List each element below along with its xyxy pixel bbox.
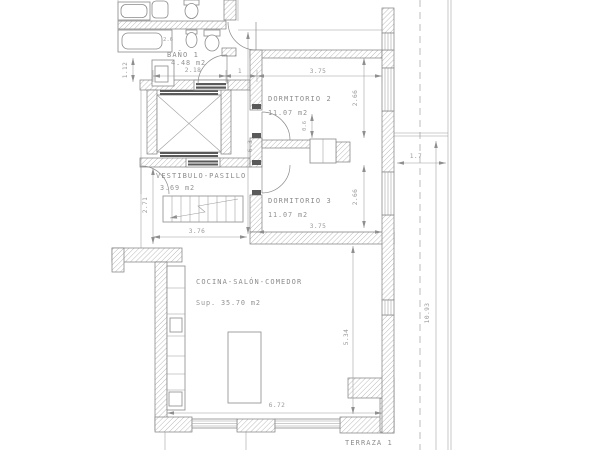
- room-label-bano1: BAÑO 1: [167, 50, 199, 59]
- room-area-dormitorio3: 11.07 m2: [268, 211, 308, 219]
- window-bottom-1: [192, 419, 237, 428]
- room-label-dormitorio3: DORMITORIO 3: [268, 197, 332, 205]
- dim-stair-width: 3.76: [189, 228, 206, 235]
- closet: [310, 139, 336, 163]
- room-label-terraza: TERRAZA 1: [345, 439, 393, 447]
- kitchen-appliance: [169, 392, 182, 406]
- dim-closet-depth: 0.6: [302, 121, 308, 131]
- dim-terraza-length: 10.93: [424, 303, 431, 324]
- floor-plan: BAÑO 1 4.48 m2 2.18 1.12 2.6 1 3.75 DORM…: [0, 0, 600, 450]
- dim-hall-width: 1: [238, 68, 242, 75]
- window-right-3: [382, 172, 394, 215]
- kitchen-fixtures: [167, 266, 261, 410]
- window-right-2: [382, 68, 394, 111]
- door-hall: [228, 22, 256, 50]
- window-right-1: [382, 33, 394, 50]
- dim-dorm3-width: 3.75: [310, 223, 327, 230]
- dim-bano-width: 2.18: [185, 67, 202, 74]
- dim-bano-left: 1.12: [122, 62, 129, 79]
- door-dormitorio3: [262, 165, 290, 193]
- floor-plan-canvas: BAÑO 1 4.48 m2 2.18 1.12 2.6 1 3.75 DORM…: [0, 0, 600, 450]
- dim-salon-depth: 5.34: [343, 329, 350, 346]
- room-area-dormitorio2: 11.07 m2: [268, 109, 308, 117]
- room-label-dormitorio2: DORMITORIO 2: [268, 95, 332, 103]
- toilet-bowl: [185, 4, 198, 19]
- room-area-cocina: Sup. 35.70 m2: [196, 299, 261, 307]
- kitchen-sink: [170, 318, 182, 332]
- bathroom-fixtures: [118, 0, 220, 86]
- room-area-bano1: 4.48 m2: [171, 59, 206, 67]
- shower-tray: [152, 1, 168, 18]
- elevator-shaft: [157, 90, 221, 157]
- toilet2-bowl: [205, 35, 219, 51]
- kitchen-island: [228, 332, 261, 403]
- dim-dorm2-width: 3.75: [310, 68, 327, 75]
- dim-bano-inner: 2.6: [163, 37, 173, 43]
- dim-dorm2-depth: 2.66: [352, 90, 359, 107]
- dim-salon-width: 6.72: [269, 402, 286, 409]
- dim-dorm3-depth: 2.66: [352, 189, 359, 206]
- dim-core-depth: 6.3: [247, 140, 254, 152]
- room-label-vestibulo: VESTIBULO-PASILLO: [156, 172, 246, 180]
- room-label-cocina: COCINA-SALÓN-COMEDOR: [196, 277, 302, 286]
- kitchen-counter: [167, 266, 185, 410]
- window-right-4: [382, 300, 394, 315]
- window-bottom-2: [275, 419, 340, 428]
- dim-terraza-width: 1.7: [410, 153, 422, 160]
- room-area-vestibulo: 3.69 m2: [160, 184, 195, 192]
- stairs: [163, 196, 243, 222]
- dim-vest-depth: 2.71: [142, 197, 149, 214]
